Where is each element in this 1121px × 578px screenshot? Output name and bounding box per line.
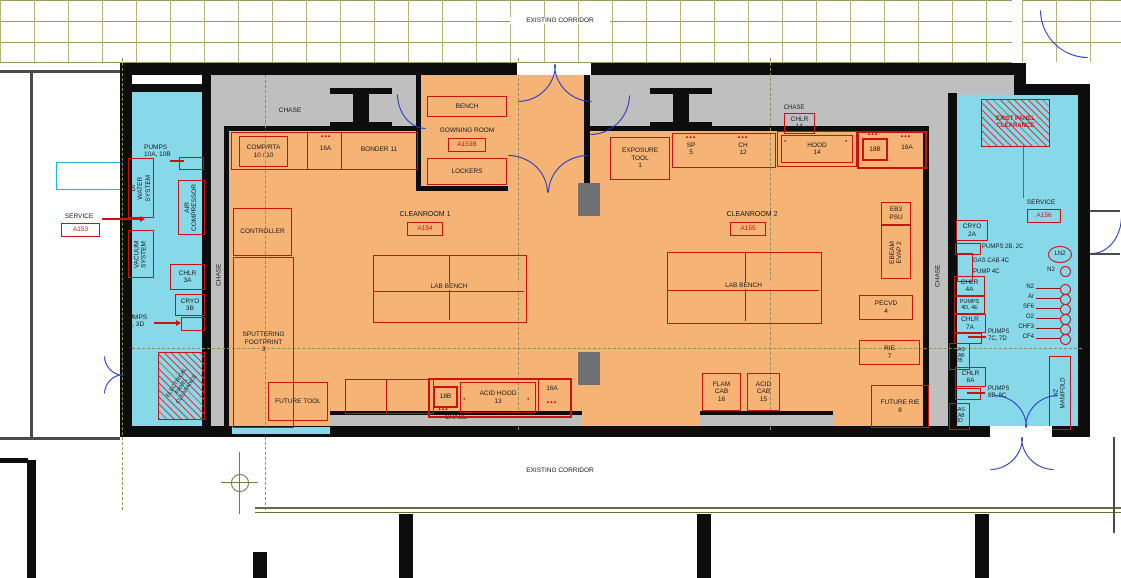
exhaust-ticks: ▴▴▴ <box>732 135 754 140</box>
exist-panel-clearance: EXIST PANEL CLEARANCE <box>981 99 1050 147</box>
exist-panel-label: EXIST PANEL CLEARANCE <box>996 116 1035 130</box>
bonder-11-label: BONDER 11 <box>342 146 416 153</box>
chlr-8a-box: CHLR 8A <box>955 367 986 387</box>
pumps-8-box <box>955 388 981 400</box>
gas-line <box>1036 308 1060 309</box>
controller-box: CONTROLLER <box>233 208 292 256</box>
door-arc <box>104 374 124 394</box>
vent-16a-label-2: 16A <box>892 144 922 151</box>
sprinkler-dot: ● <box>527 397 529 401</box>
hood-14-box: HOOD 14 <box>781 135 853 163</box>
exhaust-ticks: ▴▴▴ <box>433 407 454 412</box>
door-arc <box>1092 216 1121 254</box>
wall-segment <box>0 458 28 463</box>
top-corridor-grid <box>0 0 1012 63</box>
air-compressor-box: AIR COMPRESSOR <box>178 180 205 235</box>
sprinkler-dot: ● <box>463 397 465 401</box>
leader-line <box>968 336 986 338</box>
wall-segment <box>0 70 120 73</box>
wall-segment <box>56 162 122 190</box>
exhaust-ticks: ▴▴▴ <box>540 400 564 405</box>
gas-line <box>1036 298 1060 299</box>
ibeam-web <box>353 94 369 122</box>
exposure-tool-box: EXPOSURE TOOL 1 <box>610 137 670 180</box>
column-ibeam <box>650 88 712 128</box>
wall-segment <box>1090 253 1120 255</box>
exhaust-ticks: ▴▴▴ <box>312 134 340 139</box>
sprinkler-dot: ● <box>845 139 847 143</box>
wall-segment <box>416 186 508 191</box>
gas-label-sf6: SF6 <box>1008 304 1034 311</box>
pecvd-box: PECVD 4 <box>859 295 913 320</box>
ibeam-flange <box>330 122 392 128</box>
chase-label-right: CHASE <box>928 253 948 299</box>
bench-box: BENCH <box>427 96 507 117</box>
lockers-box: LOCKERS <box>427 158 507 185</box>
gas-label-chf3: CHF3 <box>1008 324 1034 331</box>
service-label-right: SERVICE <box>1024 199 1058 206</box>
service-label-left: SERVICE <box>56 213 102 220</box>
corridor-strip <box>232 427 330 434</box>
divider <box>386 380 387 413</box>
di-water-system-box: DI WATER SYSTEM <box>128 158 154 218</box>
ln2-tank: LN2 <box>1048 246 1072 263</box>
lab-bench-2: LAB BENCH <box>667 252 822 324</box>
survey-marker <box>231 474 249 492</box>
wall-segment <box>255 507 1121 509</box>
cleanroom2-tag-a155: A155 <box>730 222 766 236</box>
exhaust-ticks: ▴▴▴ <box>680 135 702 140</box>
wall-segment <box>578 352 600 385</box>
leader-line <box>967 392 985 394</box>
cryo-3b-box: CRYO 3B <box>175 294 205 316</box>
gas-cab-8d-box: GAS CAB 8D <box>949 403 970 430</box>
ibeam-web <box>673 94 689 122</box>
lab-bench-1-label: LAB BENCH <box>374 283 524 290</box>
pump-4c-label: PUMP 4C <box>973 269 1019 276</box>
gas-port <box>1060 334 1071 345</box>
wall-segment <box>255 512 1121 513</box>
divider <box>307 133 308 169</box>
gas-label-o2: O2 <box>1008 314 1034 321</box>
door-arc <box>990 437 1023 470</box>
bottom-chase-2 <box>700 415 833 426</box>
chase-label-left: CHASE <box>209 253 229 297</box>
survey-marker-line <box>239 452 240 514</box>
vent-18b-box-2: 18B <box>862 138 888 161</box>
pumps-2-label: PUMPS 2B, 2C <box>982 244 1052 251</box>
vent-18b-box: 18B <box>433 386 458 408</box>
lab-bench-2-label: LAB BENCH <box>668 282 819 289</box>
gowning-tag-a153b: A153B <box>448 138 486 152</box>
divider <box>374 291 524 292</box>
eb3-psu-box: EB3 PSU <box>881 202 911 225</box>
exhaust-ticks: ▴▴▴ <box>895 134 917 139</box>
service-tag-a153: A153 <box>61 223 100 237</box>
wall-segment <box>975 514 989 578</box>
cleanroom1-tag-a154: A154 <box>407 222 443 236</box>
wall-segment <box>30 73 33 437</box>
vent-16a-label: 16A <box>309 145 342 152</box>
lab-bench-1: LAB BENCH <box>373 255 527 323</box>
gas-line <box>1036 318 1060 319</box>
pumps-3-box <box>181 317 205 331</box>
leader-line <box>1023 145 1024 198</box>
vent-16a-south-label: 16A <box>538 385 566 392</box>
wall-segment <box>1113 437 1115 533</box>
centerline <box>122 58 123 510</box>
survey-marker-line <box>221 482 258 483</box>
rie-box: RIE 7 <box>859 340 920 365</box>
door-arc <box>1021 437 1054 470</box>
electrical-panel-label: ELECTRICAL PANEL CLEARANCE <box>165 367 199 405</box>
pumps-4-box: PUMPS 4D, 4E <box>954 296 985 314</box>
chase-label-top-right: CHASE <box>776 105 812 112</box>
ibeam-flange <box>650 122 712 128</box>
future-rie-box: FUTURE RIE 8 <box>871 385 929 428</box>
column-ibeam <box>330 88 392 128</box>
bottom-corridor-label: EXISTING CORRIDOR <box>510 467 610 474</box>
gas-label-cf4: CF4 <box>1008 334 1034 341</box>
n2-port <box>1060 266 1071 277</box>
tool-box <box>345 379 434 414</box>
wall-segment <box>27 460 36 578</box>
acid-hood-box: ACID HOOD 13 <box>460 382 536 413</box>
flam-cab-box: FLAM CAB 16 <box>702 373 741 411</box>
gas-label-n2: N2 <box>1008 284 1034 291</box>
wall-segment <box>399 514 413 578</box>
ch-12-label: CH 12 <box>730 142 756 157</box>
wall-segment <box>132 84 202 92</box>
cryo-2a-box: CRYO 2A <box>956 220 988 241</box>
n2-label: N2 <box>1044 267 1058 274</box>
gas-line <box>1036 328 1060 329</box>
wall-segment <box>253 552 267 578</box>
pumps-3-label: PUMPS 3C, 3D <box>124 314 158 329</box>
cleanroom-floor-plan: EXISTING CORRIDOR <box>0 0 1121 578</box>
gas-label-ar: Ar <box>1008 294 1034 301</box>
gas-line <box>1036 288 1060 289</box>
top-corridor-label: EXISTING CORRIDOR <box>510 17 610 24</box>
gowning-room-label: GOWNING ROOM <box>428 127 506 134</box>
cleanroom2-title: CLEANROOM 2 <box>712 211 792 219</box>
service-tag-a156: A156 <box>1027 209 1061 223</box>
wall-segment <box>0 437 120 440</box>
leader-line <box>102 218 140 220</box>
chlr-4a-box: CHLR 4A <box>954 276 985 296</box>
cleanroom1-title: CLEANROOM 1 <box>385 211 465 219</box>
gas-line <box>1036 338 1060 339</box>
wall-right <box>1078 84 1090 437</box>
divider <box>668 290 819 291</box>
leader-arrow <box>140 216 145 222</box>
exhaust-ticks: ▴▴▴ <box>862 132 884 137</box>
wall-segment <box>1014 63 1026 85</box>
electrical-panel-clearance: ELECTRICAL PANEL CLEARANCE <box>158 352 205 420</box>
sprinkler-dot: ● <box>784 139 786 143</box>
chlr-7a-box: CHLR 7A <box>954 314 986 333</box>
chase-label-top: CHASE <box>268 107 312 114</box>
pumps-10-box <box>179 157 204 170</box>
ebeam-evap-box: EBEAM EVAP 2 <box>881 225 911 279</box>
centerline <box>518 58 519 430</box>
chlr-3a-box: CHLR 3A <box>170 264 205 290</box>
leader-line <box>154 322 176 324</box>
gas-cab-7b-box: GAS CAB 7B <box>949 343 970 370</box>
comp-rta-box: COMP/RTA 10 / 10 <box>239 136 288 167</box>
acid-cab-box: ACID CAB 15 <box>747 373 780 411</box>
door-arc <box>104 356 124 376</box>
wall-segment <box>1090 210 1120 212</box>
vacuum-system-box: VACUUM SYSTEM <box>128 230 154 278</box>
future-tool-box: FUTURE TOOL <box>268 382 328 421</box>
gas-cab-4c-label: GAS CAB 4C <box>973 258 1031 265</box>
sp-5-label: SP 5 <box>678 142 704 157</box>
wall-segment <box>697 514 711 578</box>
